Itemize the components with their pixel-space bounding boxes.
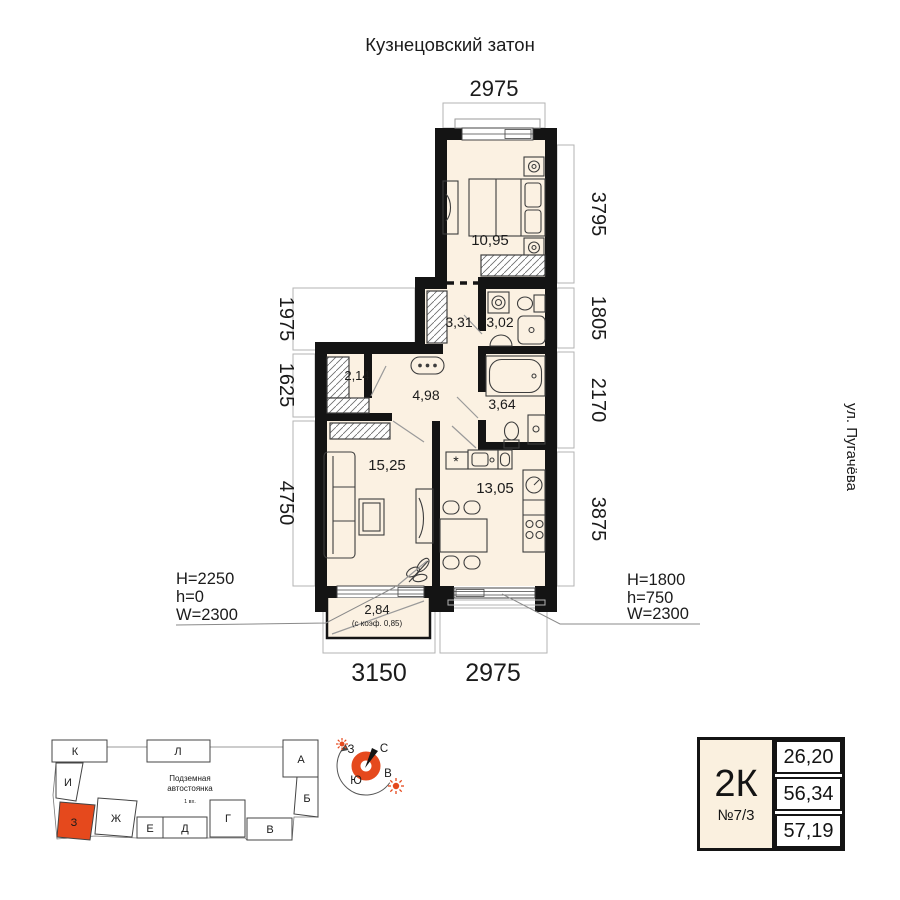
section-label: Д (181, 823, 189, 835)
section-label: Г (225, 813, 231, 825)
apartment-info-card[interactable]: 2К №7/3 26,20 56,34 57,19 (697, 737, 845, 851)
room-hall-area: 3,31 (445, 314, 472, 330)
compass-south: Ю (350, 775, 362, 787)
section-K[interactable] (52, 740, 107, 762)
parking-label-3: 1 вх. (184, 799, 196, 805)
floorplan-page: 2975 3795 1805 2170 3875 1975 1625 4750 … (0, 0, 900, 900)
compass: З С Ю В (336, 738, 404, 795)
apartment-areas: 26,20 56,34 57,19 (775, 740, 842, 848)
sunrise-icon (388, 778, 404, 794)
section-label-highlighted: З (71, 817, 78, 829)
room-wc-large-area: 3,64 (488, 396, 515, 412)
dim-left-1: 1975 (275, 297, 297, 342)
compass-west: З (348, 744, 355, 756)
section-label: И (64, 777, 72, 789)
dim-right-4: 3875 (587, 497, 609, 542)
dim-right-2: 1805 (587, 296, 609, 341)
dim-left-3: 4750 (275, 481, 297, 526)
room-closet-area: 2,14 (344, 368, 369, 383)
wardrobe-hatch (327, 398, 369, 413)
area-main: 56,34 (775, 777, 842, 811)
section-label: Ж (111, 813, 121, 825)
dim-right-1: 3795 (587, 192, 609, 237)
section-label: Б (303, 793, 310, 805)
compass-north: С (380, 743, 388, 755)
opening-left-h2: h=0 (176, 588, 204, 606)
room-balcony-note: (с коэф. 0,85) (352, 619, 403, 628)
section-label: В (266, 824, 273, 836)
opening-left-w: W=2300 (176, 606, 238, 624)
opening-right-w: W=2300 (627, 605, 689, 623)
room-balcony-area: 2,84 (364, 602, 389, 617)
apartment-number: №7/3 (718, 807, 755, 824)
stove-mark: * (453, 453, 459, 469)
parking-label-1: Подземная (169, 774, 210, 783)
section-label: Л (174, 746, 181, 758)
room-living-area: 15,25 (368, 457, 406, 474)
dim-bottom-2: 2975 (465, 659, 521, 687)
dim-bottom-1: 3150 (351, 659, 407, 687)
area-living: 26,20 (775, 740, 842, 774)
wardrobe-hatch (330, 423, 390, 439)
opening-right-h: H=1800 (627, 571, 685, 589)
room-bedroom-area: 10,95 (471, 232, 509, 249)
balcony-door-window (337, 586, 424, 598)
room-kitchen-area: 13,05 (476, 480, 514, 497)
dim-top: 2975 (470, 76, 519, 101)
compass-east: В (384, 768, 392, 780)
dim-right-3: 2170 (587, 378, 609, 423)
apartment-type: 2К (714, 765, 757, 803)
sunset-icon (336, 738, 348, 750)
section-label: К (72, 746, 79, 758)
wardrobe-hatch (427, 291, 447, 343)
room-wc-small-area: 3,02 (486, 314, 513, 330)
area-total: 57,19 (775, 814, 842, 848)
kitchen-window (448, 588, 545, 605)
section-label: А (297, 754, 305, 766)
street-label: ул. Пугачёва (843, 403, 860, 492)
apartment-id-cell: 2К №7/3 (700, 740, 775, 848)
room-corridor-area: 4,98 (412, 387, 439, 403)
site-plan: К Л А И Б З Ж Е Д Г В Подземная автостоя… (52, 740, 318, 840)
section-label: Е (146, 823, 153, 835)
dim-left-2: 1625 (275, 363, 297, 408)
wardrobe-hatch (481, 255, 545, 276)
district-label: Кузнецовский затон (365, 34, 535, 55)
opening-left-h: H=2250 (176, 570, 234, 588)
bedroom-window (455, 119, 540, 140)
parking-label-2: автостоянка (167, 784, 213, 793)
